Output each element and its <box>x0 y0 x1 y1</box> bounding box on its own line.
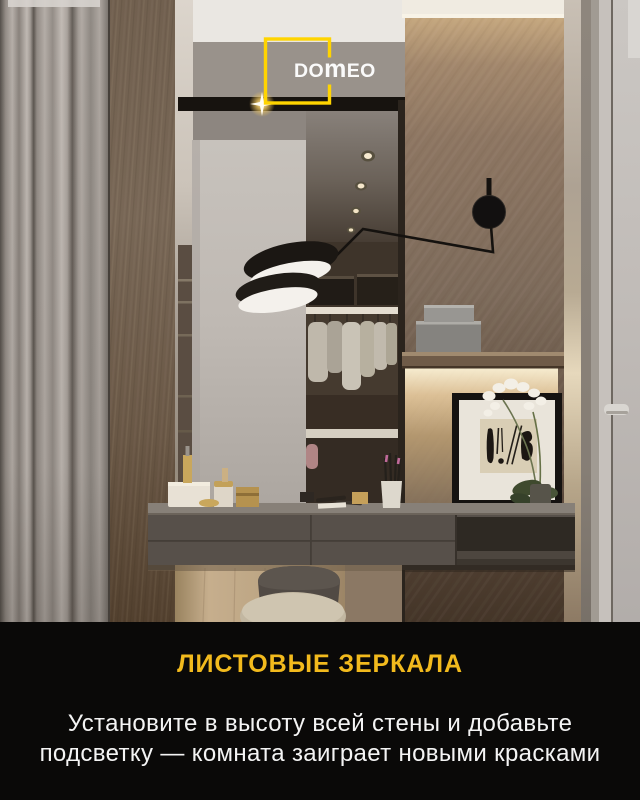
svg-text:DOmEO: DOmEO <box>294 55 376 83</box>
